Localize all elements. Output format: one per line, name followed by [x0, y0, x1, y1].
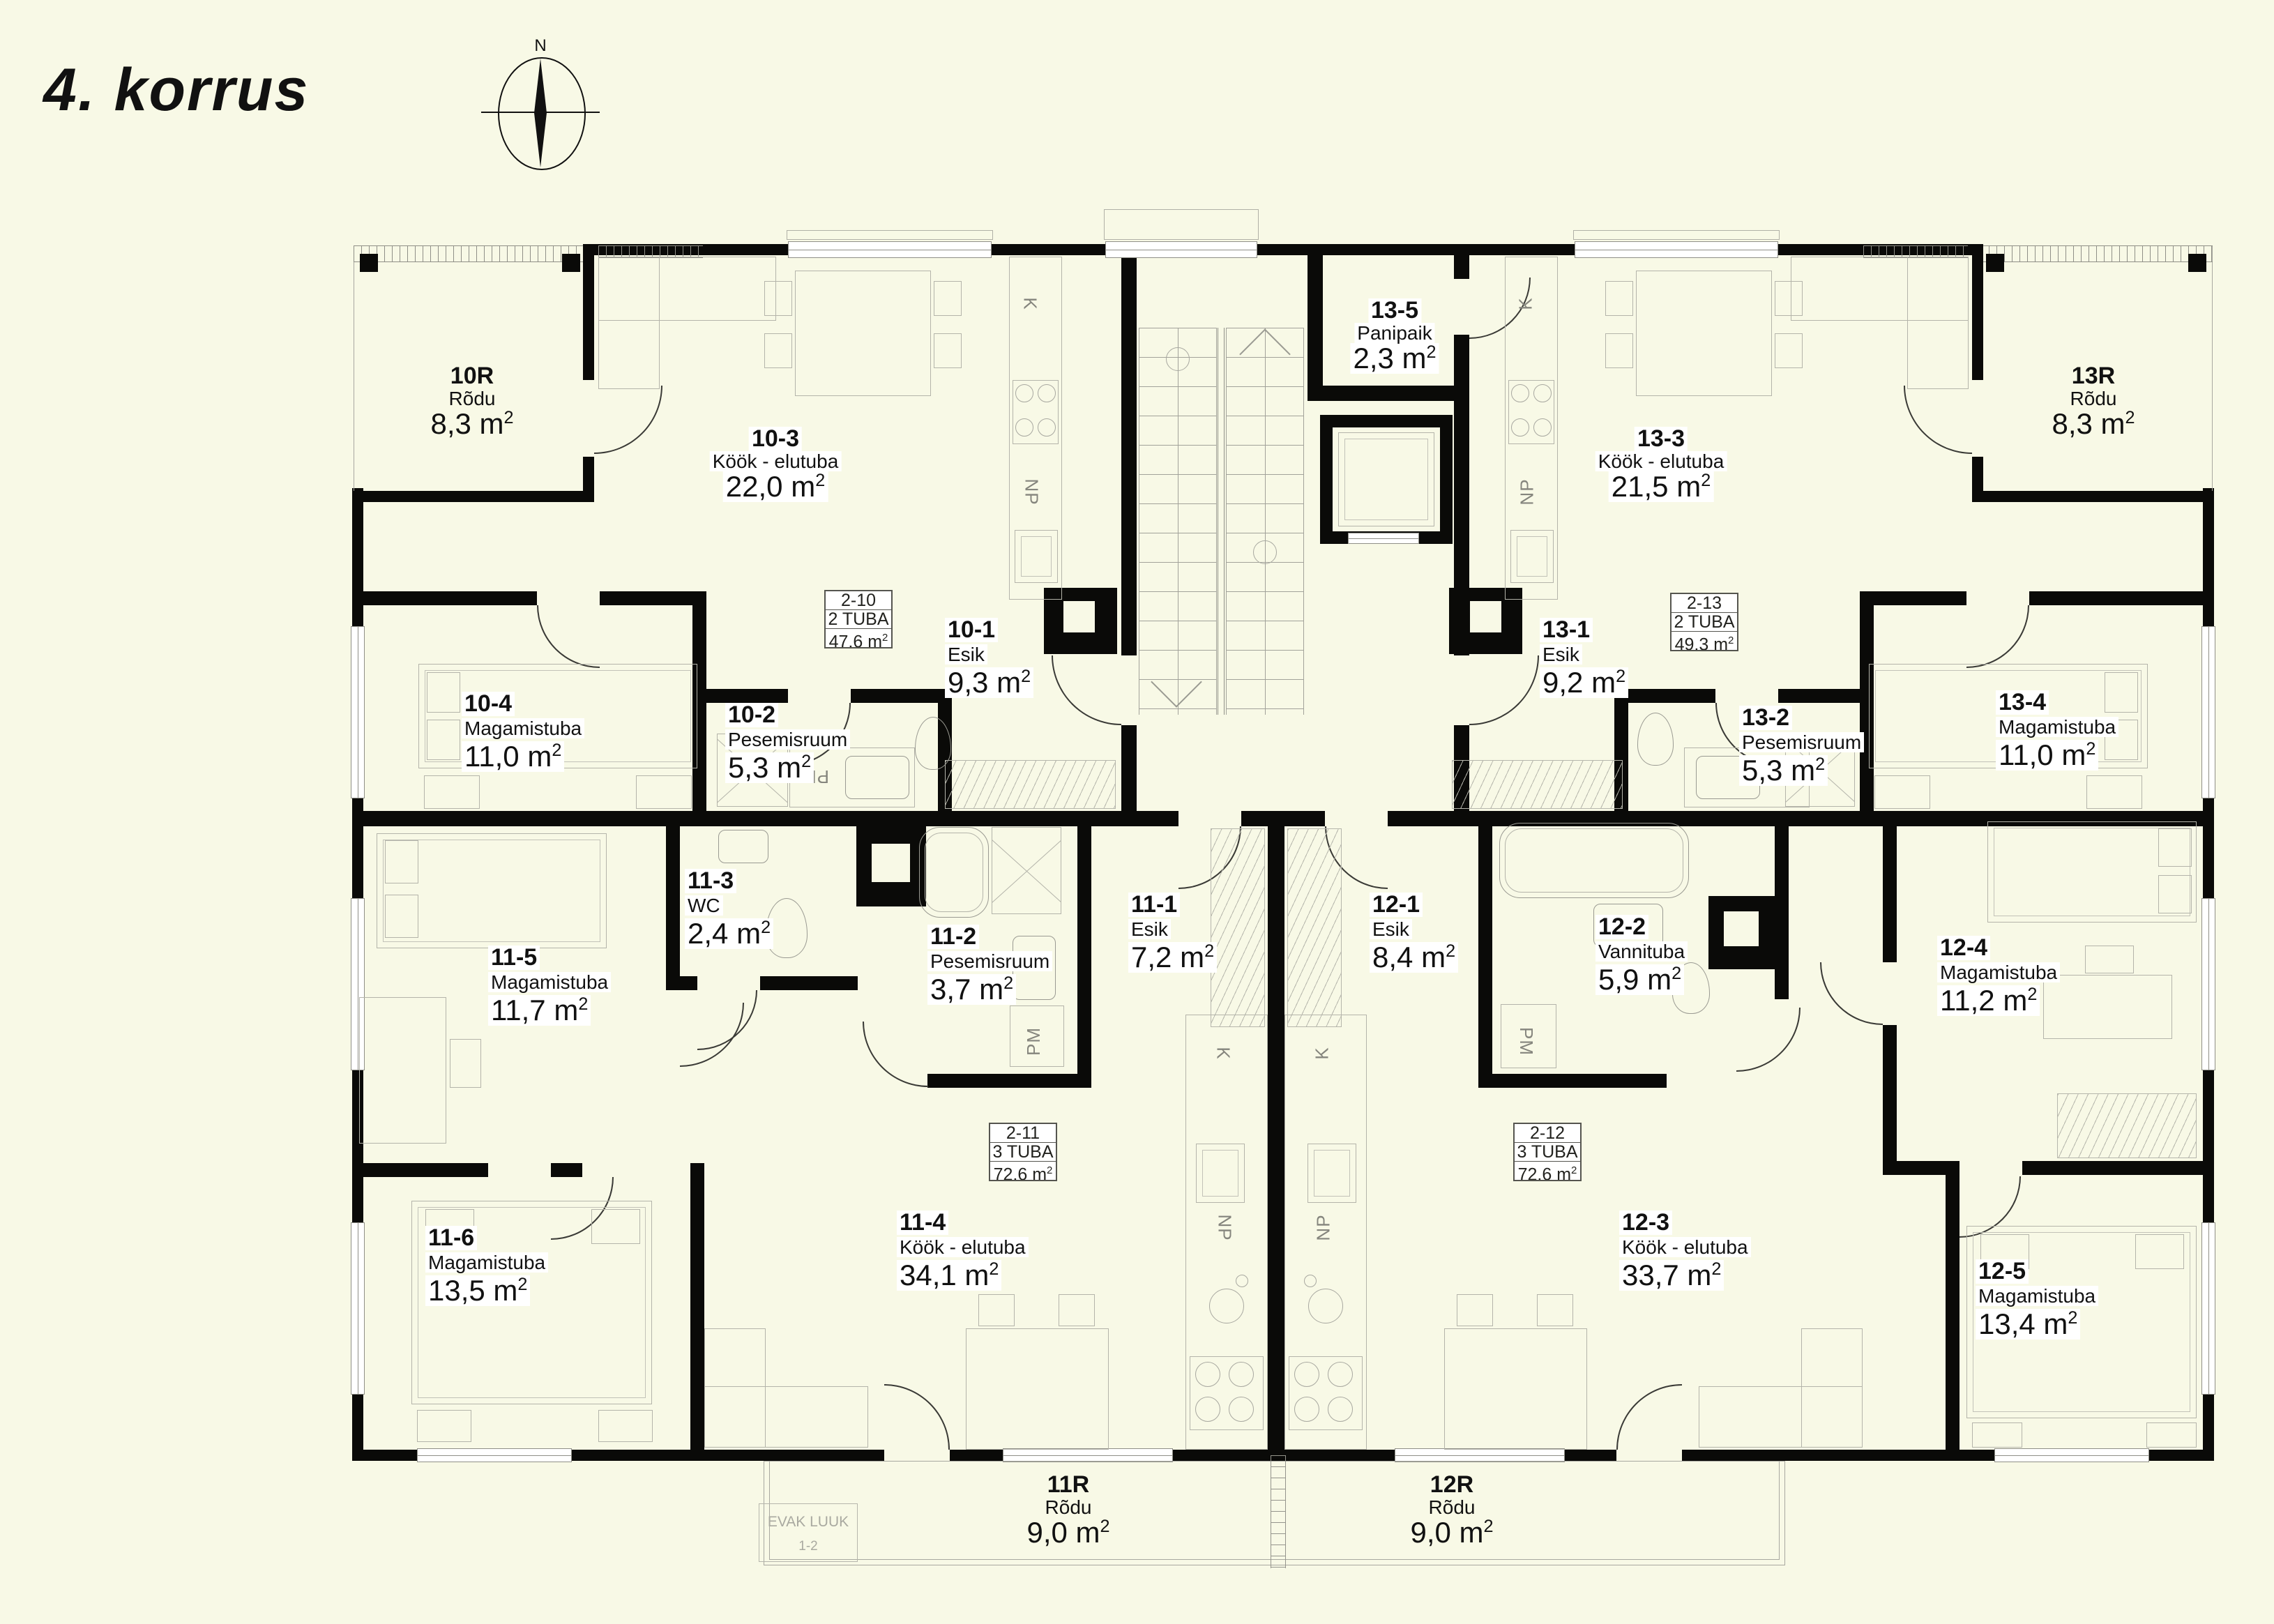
unit-code: 2-12 [1515, 1124, 1580, 1143]
wall [690, 1163, 704, 1450]
room-label-13R: 13RRõdu 8,3 m2 [2049, 364, 2137, 439]
wall [666, 976, 697, 990]
toilet [1637, 713, 1674, 766]
pillow [385, 840, 418, 883]
vent-shaft-opening [1470, 601, 1501, 632]
wall [666, 811, 680, 990]
chair [934, 281, 962, 316]
door-arc [537, 605, 600, 668]
fridge-label: K [1515, 297, 1537, 310]
room-label-10R: 10RRõdu 8,3 m2 [427, 364, 516, 439]
room-label-11-1: 11-1Esik 7,2 m2 [1128, 893, 1217, 973]
window [788, 241, 992, 258]
wall [1973, 491, 2214, 502]
room-label-13-1: 13-1Esik 9,2 m2 [1540, 618, 1628, 698]
chair [1457, 1294, 1493, 1326]
sink [718, 830, 768, 863]
elevator-door [1348, 533, 1419, 544]
unit-summary-2-10: 2-10 2 TUBA 47,6 m2 [824, 590, 893, 648]
oven-inner [1314, 1150, 1350, 1197]
bathtub-inner [925, 833, 983, 912]
unit-summary-2-11: 2-11 3 TUBA 72,6 m2 [989, 1123, 1057, 1181]
unit-rooms: 2 TUBA [1672, 613, 1737, 632]
bathtub-inner [1505, 828, 1683, 893]
wall [1883, 1161, 1946, 1175]
balcony-post [1986, 254, 2004, 272]
wall [352, 811, 1178, 826]
dining-table [1444, 1328, 1587, 1450]
hob-burner [1511, 418, 1529, 437]
window [2201, 1222, 2215, 1395]
nightstand [424, 775, 480, 809]
window [1105, 241, 1257, 258]
hob-burner [1229, 1362, 1254, 1387]
chair [1775, 281, 1803, 316]
bathtub [919, 827, 989, 918]
unit-code: 2-13 [1672, 594, 1737, 613]
door-arc [1966, 605, 2029, 668]
balcony-post [360, 254, 378, 272]
pillow [591, 1209, 640, 1244]
pillow [385, 895, 418, 938]
chair [1605, 281, 1633, 316]
hob-burner [1511, 384, 1529, 402]
dishwasher-label: NP [1313, 1214, 1335, 1240]
wall [2022, 1161, 2203, 1175]
dining-table [795, 271, 931, 396]
room-label-11R: 11RRõdu 9,0 m2 [1024, 1473, 1112, 1548]
room-label-10-3: 10-3Köök - elutuba 22,0 m2 [710, 427, 842, 502]
oven-icon [1307, 1144, 1356, 1203]
hob-burner [1533, 384, 1552, 402]
nightstand [2086, 775, 2142, 809]
nightstand [636, 775, 692, 809]
kitchen-faucet [1236, 1275, 1248, 1287]
hob-burner [1038, 418, 1056, 437]
window [1994, 1448, 2149, 1462]
hob-burner [1533, 418, 1552, 437]
vent-shaft-opening [1063, 601, 1095, 632]
window [2201, 898, 2215, 1070]
room-label-11-5: 11-5Magamistuba 11,7 m2 [488, 946, 611, 1026]
fridge-label: K [1312, 1047, 1333, 1059]
room-label-11-6: 11-6Magamistuba 13,5 m2 [425, 1226, 548, 1306]
room-label-13-4: 13-4Magamistuba 11,0 m2 [1996, 690, 2118, 771]
window [417, 1448, 572, 1462]
hob-burner [1195, 1397, 1220, 1422]
pillow [2135, 1234, 2184, 1269]
room-label-12-5: 12-5Magamistuba 13,4 m2 [1976, 1259, 2098, 1340]
unit-summary-2-13: 2-13 2 TUBA 49,3 m2 [1670, 593, 1738, 651]
wall [1241, 811, 1325, 826]
balcony-post [562, 254, 580, 272]
room-label-12-2: 12-2Vannituba 5,9 m2 [1595, 915, 1688, 995]
wall [1307, 386, 1455, 401]
wall [352, 591, 537, 605]
dishwasher-label: NP [1517, 478, 1538, 505]
unit-summary-2-12: 2-12 3 TUBA 72,6 m2 [1513, 1123, 1582, 1181]
door-arc [1904, 386, 1972, 454]
wardrobe [1452, 760, 1623, 809]
door-arc [1736, 1008, 1801, 1072]
door-arc [1616, 1384, 1682, 1450]
kitchen-faucet [1304, 1275, 1317, 1287]
wall [1454, 255, 1469, 279]
room-label-12-4: 12-4Magamistuba 11,2 m2 [1937, 936, 2060, 1016]
sofa [598, 257, 660, 389]
unit-code: 2-10 [826, 591, 891, 610]
oven-inner [1517, 536, 1547, 577]
hob-burner [1015, 384, 1033, 402]
wall [851, 689, 952, 703]
window [351, 1222, 365, 1395]
evak-line1: EVAK LUUK [759, 1514, 857, 1531]
page-title: 4. korrus [43, 56, 309, 125]
nightstand [598, 1410, 653, 1442]
oven-inner [1021, 536, 1052, 577]
oven-inner [1202, 1150, 1238, 1197]
nightstand [417, 1410, 471, 1442]
wall [927, 1074, 1077, 1088]
hob-burner [1294, 1362, 1319, 1387]
balcony-post [2188, 254, 2206, 272]
evacuation-hatch-label: EVAK LUUK 1-2 [759, 1503, 858, 1562]
vent-shaft-opening [1724, 911, 1759, 946]
hob-burner [1038, 384, 1056, 402]
wall [1478, 811, 1492, 1088]
wall [1614, 689, 1715, 703]
room-label-11-4: 11-4Köök - elutuba 34,1 m2 [897, 1211, 1029, 1291]
vent-shaft-opening [872, 844, 910, 882]
window [2201, 626, 2215, 798]
unit-area: 49,3 m2 [1672, 632, 1737, 650]
stair-divider [1218, 328, 1225, 715]
elevator-car [1338, 432, 1434, 526]
kitchen-sink [1209, 1289, 1244, 1323]
pillow [427, 672, 460, 713]
kitchen-sink [1308, 1289, 1343, 1323]
unit-rooms: 2 TUBA [826, 610, 891, 629]
door-arc [594, 386, 662, 454]
hob-burner [1015, 418, 1033, 437]
wall [352, 491, 593, 502]
oven-icon [1510, 530, 1554, 583]
chair [978, 1294, 1015, 1326]
hob-burner [1294, 1397, 1319, 1422]
wall [1307, 255, 1323, 401]
stair-marker [1166, 347, 1190, 371]
shower [992, 827, 1061, 914]
unit-rooms: 3 TUBA [1515, 1143, 1580, 1162]
chair [1059, 1294, 1095, 1326]
wall [583, 244, 594, 502]
wall [600, 591, 706, 605]
pillow [2158, 875, 2192, 913]
door-opening [583, 380, 594, 457]
compass-icon: N [481, 36, 600, 176]
desk [2043, 975, 2172, 1039]
room-label-10-2: 10-2Pesemisruum 5,3 m2 [725, 703, 850, 783]
unit-area: 47,6 m2 [826, 629, 891, 647]
dishwasher-label: NP [1214, 1214, 1236, 1240]
sofa [704, 1328, 766, 1448]
sofa [1801, 1328, 1863, 1448]
room-label-11-3: 11-3WC 2,4 m2 [685, 869, 773, 949]
stair-centerline [1265, 328, 1266, 715]
window [351, 626, 365, 798]
balcony-railing [354, 245, 593, 262]
compass-needle-north [534, 59, 547, 113]
nightstand [1874, 775, 1930, 809]
door-arc [884, 1384, 950, 1450]
wall [706, 689, 788, 703]
room-label-12R: 12RRõdu 9,0 m2 [1407, 1473, 1496, 1548]
entrance-canopy [1104, 209, 1259, 240]
fridge-label: K [1019, 297, 1041, 310]
wall [1121, 255, 1137, 655]
door-opening [1972, 380, 1983, 457]
chair [764, 281, 792, 316]
chair [450, 1039, 481, 1088]
wall [352, 1163, 488, 1177]
sofa [1907, 257, 1969, 389]
wall [1778, 689, 1860, 703]
balcony-railing [1973, 245, 2213, 262]
pillow [2158, 828, 2192, 867]
unit-area: 72,6 m2 [1515, 1162, 1580, 1180]
wall [1972, 244, 1983, 502]
door-arc [863, 1022, 928, 1087]
window [1395, 1448, 1565, 1462]
nightstand [1972, 1422, 2022, 1448]
unit-code: 2-11 [990, 1124, 1056, 1143]
room-label-11-2: 11-2Pesemisruum 3,7 m2 [927, 925, 1052, 1005]
door-arc [1469, 655, 1539, 725]
hob-burner [1328, 1362, 1353, 1387]
hob-burner [1195, 1362, 1220, 1387]
unit-area: 72,6 m2 [990, 1162, 1056, 1180]
washer-label: PM [1023, 1027, 1045, 1056]
wall [760, 976, 858, 990]
wall [1860, 591, 1966, 605]
window-sill [1573, 230, 1780, 240]
wall [1883, 1025, 1897, 1161]
door-arc [1052, 655, 1121, 725]
desk [359, 997, 446, 1144]
nightstand [2146, 1422, 2197, 1448]
chair [764, 333, 792, 368]
fridge-label: K [1213, 1047, 1234, 1059]
wardrobe [945, 760, 1116, 809]
window [1003, 1448, 1173, 1462]
compass-north-label: N [534, 36, 546, 56]
pillow [427, 720, 460, 760]
door-arc [680, 1003, 744, 1067]
floor-plan-page: 4. korrus N [0, 0, 2274, 1624]
wall [1883, 811, 1897, 962]
elevator-car-inner [1344, 439, 1428, 520]
compass-needle-south [534, 113, 547, 167]
room-label-12-3: 12-3Köök - elutuba 33,7 m2 [1619, 1211, 1751, 1291]
hob-burner [1328, 1397, 1353, 1422]
room-label-10-1: 10-1Esik 9,3 m2 [945, 618, 1033, 698]
sink [845, 756, 909, 799]
stair-marker [1253, 540, 1277, 564]
unit-rooms: 3 TUBA [990, 1143, 1056, 1162]
wall [1268, 826, 1284, 1450]
stair-centerline [1178, 328, 1178, 715]
washer-label: PM [1515, 1027, 1537, 1056]
chair [1605, 333, 1633, 368]
wardrobe [1287, 828, 1342, 1027]
bathtub [1499, 823, 1689, 898]
wall [1492, 1074, 1667, 1088]
chair [934, 333, 962, 368]
room-label-13-2: 13-2Pesemisruum 5,3 m2 [1739, 706, 1864, 786]
evak-line2: 1-2 [759, 1539, 857, 1554]
wall [1121, 725, 1137, 811]
wall [551, 1163, 582, 1177]
window-sill [787, 230, 993, 240]
dining-table [1636, 271, 1772, 396]
room-label-13-5: 13-5Panipaik 2,3 m2 [1350, 298, 1439, 374]
evacuation-ladder [1271, 1455, 1286, 1568]
wall [1077, 811, 1091, 1088]
room-label-13-3: 13-3Köök - elutuba 21,5 m2 [1595, 427, 1727, 502]
wardrobe [1211, 828, 1265, 1027]
door-arc [1820, 962, 1883, 1025]
chair [1775, 333, 1803, 368]
dining-table [966, 1328, 1109, 1450]
wall [1946, 1161, 1960, 1450]
chair [1537, 1294, 1573, 1326]
door-opening [1616, 1448, 1682, 1462]
room-label-12-1: 12-1Esik 8,4 m2 [1370, 893, 1458, 973]
dishwasher-label: NP [1021, 478, 1043, 505]
oven-icon [1015, 530, 1058, 583]
window [1575, 241, 1778, 258]
wardrobe [2057, 1093, 2197, 1158]
door-opening [884, 1448, 950, 1462]
hob-burner [1229, 1397, 1254, 1422]
room-label-10-4: 10-4Magamistuba 11,0 m2 [462, 692, 584, 772]
wall [2029, 591, 2214, 605]
chair [2085, 946, 2134, 973]
oven-icon [1196, 1144, 1245, 1203]
